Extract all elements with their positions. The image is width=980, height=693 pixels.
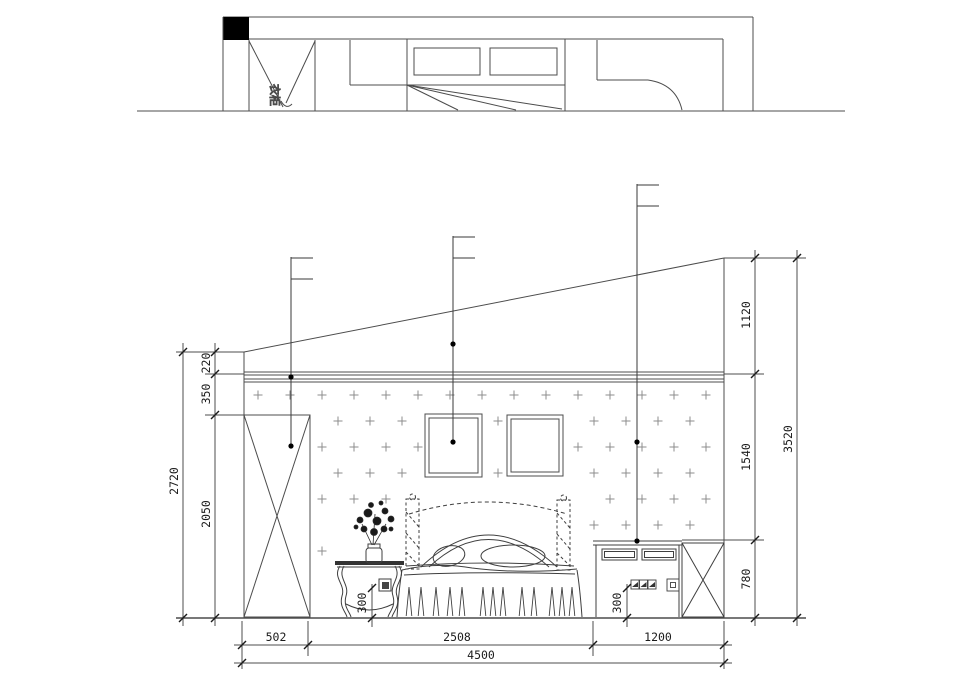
dim-label-left-seg3: 2050 [199, 500, 213, 528]
wallpaper-plus [670, 495, 679, 504]
wallpaper-plus [590, 469, 599, 478]
tassel [500, 587, 506, 616]
tassel [406, 587, 412, 616]
wallpaper-plus [702, 495, 711, 504]
dim-label-right-seg3: 780 [739, 569, 753, 590]
wallpaper-plus [622, 417, 631, 426]
leader-dot [634, 538, 639, 543]
dim-label-right-seg1: 1120 [739, 301, 753, 329]
dim-label-bottom-seg1: 502 [266, 630, 287, 644]
wallpaper-plus [590, 521, 599, 530]
bed-roll-line-2 [404, 573, 575, 575]
bed-skirt-right [577, 570, 582, 617]
tassel [531, 587, 537, 616]
wallpaper-plus [318, 391, 327, 400]
picture-frame-2 [507, 415, 563, 476]
plan-window-1 [414, 48, 480, 75]
wallpaper-plus [398, 417, 407, 426]
wallpaper-plus [654, 469, 663, 478]
dim-label-right-seg2: 1540 [739, 443, 753, 471]
plan-window-2 [490, 48, 557, 75]
ceiling-slope-line [244, 258, 724, 352]
wallpaper-plus [366, 469, 375, 478]
wallpaper-plus [414, 443, 423, 452]
wallpaper-plus [350, 391, 359, 400]
wallpaper-plus [622, 469, 631, 478]
leader-callouts [288, 184, 659, 544]
leader-3 [634, 184, 659, 544]
plan-door-swing [597, 80, 682, 110]
dim-label-outlet-right: 300 [610, 593, 624, 614]
dim-label-right-total: 3520 [781, 425, 795, 453]
wallpaper-plus [350, 495, 359, 504]
wallpaper-plus [622, 521, 631, 530]
cabinet-x [682, 543, 724, 617]
tassel [519, 587, 525, 616]
wallpaper-plus [494, 469, 503, 478]
flower-bouquet [354, 501, 394, 545]
leader-1 [288, 257, 313, 449]
wallpaper-plus [654, 521, 663, 530]
plan-wardrobe-label: 衣柜 [268, 84, 282, 106]
leader-dot [450, 341, 455, 346]
table-stretcher [346, 604, 393, 610]
floor-plan: 衣柜 [137, 17, 845, 111]
tassel [559, 587, 565, 616]
bed-post-right [557, 495, 570, 570]
socket-single [667, 579, 679, 591]
socket-strip [631, 580, 656, 589]
wallpaper-plus [702, 391, 711, 400]
dim-label-bottom-seg2: 2508 [443, 630, 471, 644]
leader-dot [450, 439, 455, 444]
leader-flag-icon [453, 236, 475, 442]
wallpaper-plus [334, 417, 343, 426]
elevation-drawing-svg: 衣柜 [0, 0, 980, 693]
bed-skirt-tassels [406, 587, 575, 616]
flower-vase [366, 544, 382, 563]
plan-wardrobe [249, 41, 315, 107]
dim-label-bottom-total: 4500 [467, 648, 495, 662]
bed-roll-line [402, 565, 577, 571]
wallpaper-plus [366, 417, 375, 426]
leader-dot [634, 439, 639, 444]
bed-canopy [409, 502, 567, 514]
wallpaper-plus [670, 443, 679, 452]
tassel [549, 587, 555, 616]
wallpaper-plus [382, 391, 391, 400]
plan-fan-lines [407, 85, 562, 110]
tassel [490, 587, 496, 616]
wallpaper-plus [574, 391, 583, 400]
wallpaper-plus [686, 521, 695, 530]
leader-dot [288, 443, 293, 448]
wallpaper-plus [286, 391, 295, 400]
wallpaper-plus [702, 443, 711, 452]
outlet-left [379, 579, 391, 591]
wallpaper-plus [574, 443, 583, 452]
tassel [418, 587, 424, 616]
drawer-2 [642, 549, 676, 560]
dim-label-left-total: 2720 [167, 467, 181, 495]
cad-sheet: 衣柜 [0, 0, 980, 693]
wallpaper-plus [398, 469, 407, 478]
wallpaper-plus [542, 391, 551, 400]
wallpaper-plus [318, 495, 327, 504]
wallpaper-plus [670, 391, 679, 400]
plan-column-filled [223, 17, 249, 40]
tassel [433, 587, 439, 616]
leader-flag-icon [637, 184, 659, 541]
wallpaper-plus [350, 443, 359, 452]
bed [397, 494, 582, 617]
tassel [569, 587, 575, 616]
dim-label-left-seg2: 350 [199, 384, 213, 405]
wallpaper-plus [318, 443, 327, 452]
dim-label-bottom-seg3: 1200 [644, 630, 672, 644]
dim-label-outlet-left: 300 [355, 593, 369, 614]
tassel [480, 587, 486, 616]
tassel [459, 587, 465, 616]
wallpaper-plus [606, 391, 615, 400]
wallpaper-plus [478, 391, 487, 400]
wallpaper-plus [318, 547, 327, 556]
leader-dot [288, 374, 293, 379]
wallpaper-plus [494, 417, 503, 426]
wallpaper-plus [254, 391, 263, 400]
wallpaper-plus [606, 495, 615, 504]
wardrobe-elevation [244, 415, 310, 617]
wallpaper-plus [638, 443, 647, 452]
leader-2 [450, 236, 475, 445]
tassel [447, 587, 453, 616]
wallpaper-plus [654, 417, 663, 426]
cornice-molding [244, 372, 724, 382]
dim-label-left-seg1: 220 [199, 353, 213, 374]
wallpaper-plus [382, 443, 391, 452]
drawer-1 [602, 549, 637, 560]
wallpaper-plus [638, 495, 647, 504]
dimension-ticks [179, 254, 801, 667]
wallpaper-plus [686, 417, 695, 426]
wallpaper-plus [334, 469, 343, 478]
bedside-table [335, 561, 404, 617]
wallpaper-plus [590, 417, 599, 426]
wallpaper-plus [606, 443, 615, 452]
wallpaper-plus [510, 391, 519, 400]
bed-post-left [406, 494, 419, 569]
wallpaper-plus [638, 391, 647, 400]
wallpaper-plus [414, 391, 423, 400]
wallpaper-plus [686, 469, 695, 478]
